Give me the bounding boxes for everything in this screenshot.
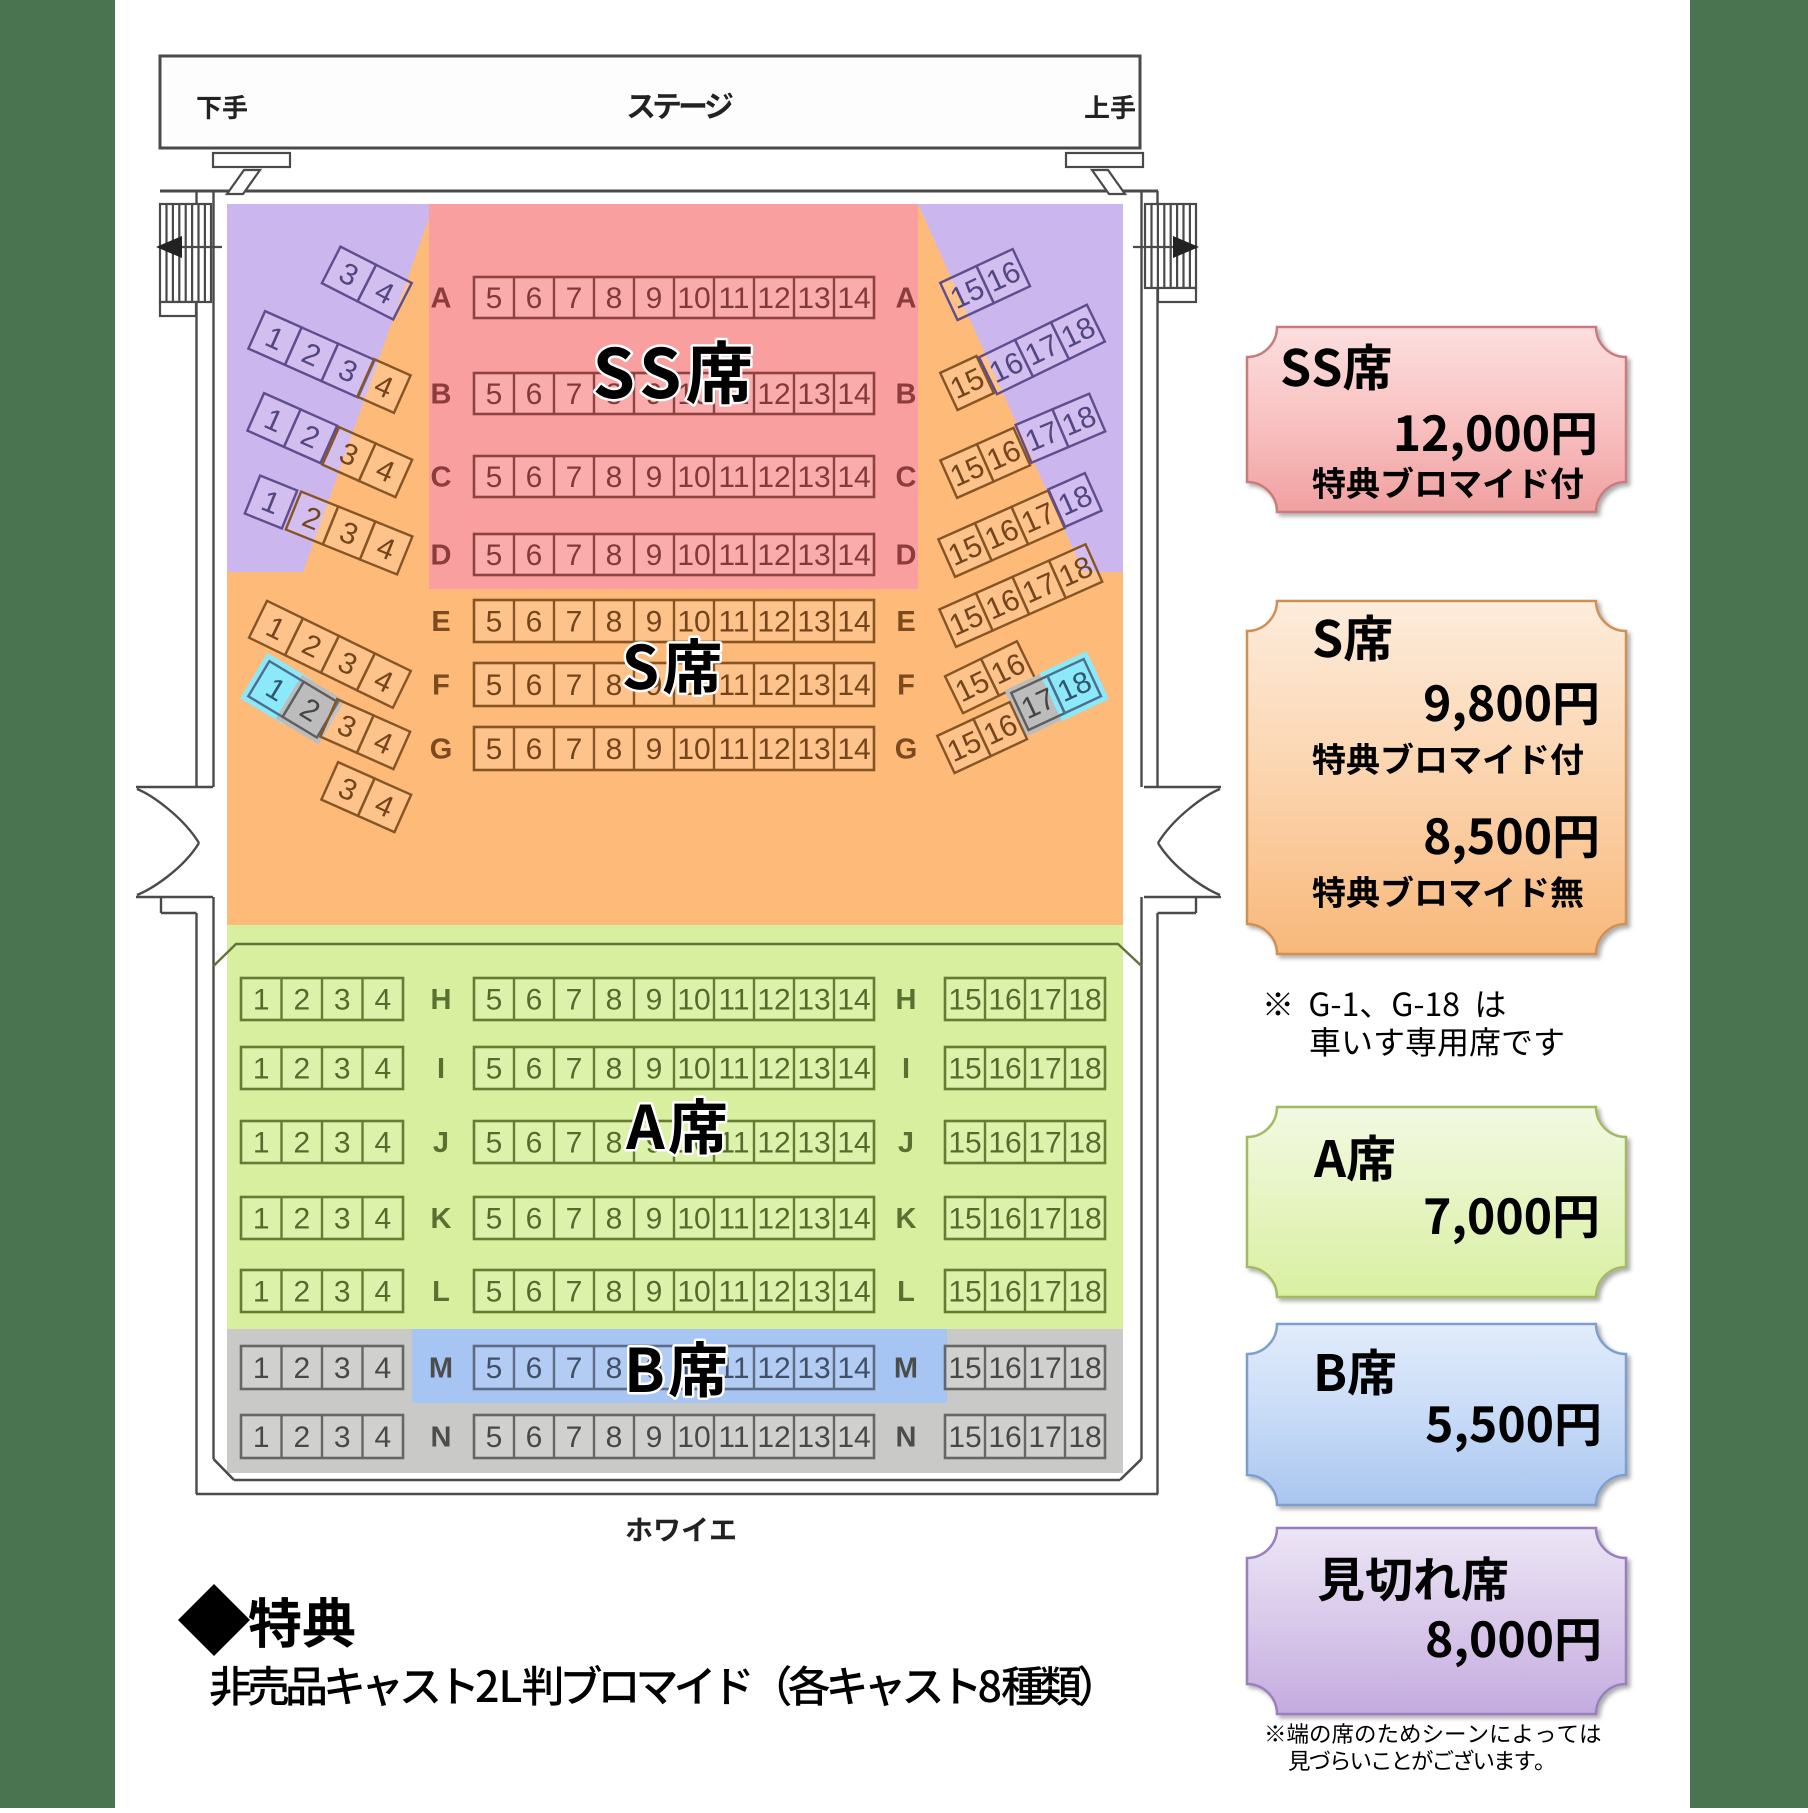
- svg-text:12: 12: [757, 1421, 790, 1454]
- svg-text:14: 14: [837, 606, 870, 639]
- svg-text:D: D: [431, 540, 452, 572]
- svg-text:9: 9: [646, 282, 663, 315]
- svg-text:12: 12: [757, 1276, 790, 1309]
- svg-text:15: 15: [948, 1053, 981, 1086]
- svg-text:A: A: [896, 283, 917, 315]
- svg-text:G: G: [895, 734, 918, 766]
- svg-text:9: 9: [646, 984, 663, 1017]
- svg-text:8: 8: [606, 1203, 623, 1236]
- svg-text:5: 5: [486, 984, 503, 1017]
- svg-text:13: 13: [797, 606, 830, 639]
- svg-text:10: 10: [677, 282, 710, 315]
- svg-text:10: 10: [677, 984, 710, 1017]
- svg-text:13: 13: [797, 378, 830, 411]
- svg-text:N: N: [896, 1422, 917, 1454]
- svg-text:4: 4: [374, 1352, 391, 1385]
- svg-text:12: 12: [757, 1127, 790, 1160]
- svg-text:13: 13: [797, 282, 830, 315]
- svg-text:9: 9: [646, 1421, 663, 1454]
- svg-text:14: 14: [837, 669, 870, 702]
- svg-text:6: 6: [526, 984, 543, 1017]
- svg-text:16: 16: [988, 1276, 1021, 1309]
- svg-text:4: 4: [374, 1127, 391, 1160]
- svg-text:12: 12: [757, 282, 790, 315]
- svg-text:7: 7: [566, 378, 583, 411]
- svg-text:14: 14: [837, 378, 870, 411]
- svg-text:15: 15: [948, 1276, 981, 1309]
- svg-text:L: L: [432, 1276, 450, 1308]
- svg-text:11: 11: [718, 669, 749, 702]
- svg-text:B: B: [896, 379, 917, 411]
- svg-text:17: 17: [1028, 1203, 1061, 1236]
- svg-text:15: 15: [948, 1127, 981, 1160]
- svg-text:16: 16: [988, 1127, 1021, 1160]
- svg-text:12: 12: [757, 606, 790, 639]
- svg-text:L: L: [897, 1276, 915, 1308]
- svg-text:18: 18: [1068, 1203, 1101, 1236]
- svg-text:8: 8: [606, 461, 623, 494]
- svg-text:11: 11: [718, 984, 749, 1017]
- svg-text:8: 8: [606, 1053, 623, 1086]
- svg-text:8: 8: [606, 1352, 623, 1385]
- svg-text:5: 5: [486, 1352, 503, 1385]
- svg-text:3: 3: [334, 1127, 351, 1160]
- svg-text:14: 14: [837, 1276, 870, 1309]
- svg-text:11: 11: [718, 1203, 749, 1236]
- svg-text:8: 8: [606, 606, 623, 639]
- svg-text:11: 11: [718, 1053, 749, 1086]
- svg-text:5: 5: [486, 606, 503, 639]
- svg-text:7: 7: [566, 1352, 583, 1385]
- svg-text:3: 3: [334, 1203, 351, 1236]
- svg-text:2: 2: [293, 1421, 310, 1454]
- svg-text:4: 4: [374, 984, 391, 1017]
- svg-text:18: 18: [1068, 1421, 1101, 1454]
- svg-text:11: 11: [718, 461, 749, 494]
- svg-text:1: 1: [253, 1203, 270, 1236]
- svg-text:14: 14: [837, 539, 870, 572]
- svg-text:12: 12: [757, 1352, 790, 1385]
- svg-text:M: M: [894, 1353, 918, 1385]
- svg-text:10: 10: [677, 539, 710, 572]
- svg-text:N: N: [431, 1422, 452, 1454]
- svg-text:18: 18: [1068, 1127, 1101, 1160]
- svg-text:B: B: [431, 379, 452, 411]
- svg-text:C: C: [431, 462, 452, 494]
- svg-text:6: 6: [526, 733, 543, 766]
- svg-text:5: 5: [486, 1203, 503, 1236]
- svg-text:14: 14: [837, 733, 870, 766]
- svg-text:3: 3: [334, 1276, 351, 1309]
- svg-text:E: E: [896, 606, 915, 638]
- svg-text:6: 6: [526, 1352, 543, 1385]
- svg-text:10: 10: [677, 1053, 710, 1086]
- svg-text:5: 5: [486, 669, 503, 702]
- svg-text:16: 16: [988, 1421, 1021, 1454]
- svg-text:18: 18: [1068, 1352, 1101, 1385]
- svg-text:6: 6: [526, 539, 543, 572]
- svg-text:12: 12: [757, 984, 790, 1017]
- svg-text:7: 7: [566, 461, 583, 494]
- svg-text:7: 7: [566, 1127, 583, 1160]
- svg-text:J: J: [898, 1127, 914, 1159]
- svg-text:9: 9: [646, 606, 663, 639]
- svg-text:7: 7: [566, 1421, 583, 1454]
- svg-text:14: 14: [837, 1127, 870, 1160]
- svg-text:K: K: [431, 1203, 452, 1235]
- svg-text:11: 11: [718, 733, 749, 766]
- svg-text:4: 4: [374, 1053, 391, 1086]
- svg-text:8: 8: [606, 984, 623, 1017]
- svg-text:15: 15: [948, 1421, 981, 1454]
- svg-text:7: 7: [566, 282, 583, 315]
- svg-text:6: 6: [526, 1053, 543, 1086]
- svg-text:13: 13: [797, 539, 830, 572]
- svg-text:6: 6: [526, 669, 543, 702]
- svg-text:14: 14: [837, 461, 870, 494]
- svg-text:9: 9: [646, 1276, 663, 1309]
- svg-text:18: 18: [1068, 984, 1101, 1017]
- svg-text:14: 14: [837, 282, 870, 315]
- svg-text:3: 3: [334, 1352, 351, 1385]
- svg-text:17: 17: [1028, 1053, 1061, 1086]
- svg-text:1: 1: [253, 1352, 270, 1385]
- svg-text:18: 18: [1068, 1276, 1101, 1309]
- svg-text:A: A: [431, 283, 452, 315]
- svg-text:9: 9: [646, 733, 663, 766]
- svg-text:4: 4: [374, 1203, 391, 1236]
- svg-text:5: 5: [486, 1127, 503, 1160]
- svg-text:1: 1: [253, 1053, 270, 1086]
- svg-text:2: 2: [293, 1276, 310, 1309]
- svg-text:8: 8: [606, 1276, 623, 1309]
- svg-text:16: 16: [988, 1352, 1021, 1385]
- svg-text:13: 13: [797, 669, 830, 702]
- svg-text:1: 1: [253, 1276, 270, 1309]
- svg-text:18: 18: [1068, 1053, 1101, 1086]
- svg-text:17: 17: [1028, 1276, 1061, 1309]
- svg-text:H: H: [431, 984, 452, 1016]
- svg-text:4: 4: [374, 1276, 391, 1309]
- svg-text:3: 3: [334, 1421, 351, 1454]
- svg-text:2: 2: [293, 1053, 310, 1086]
- svg-text:10: 10: [677, 1203, 710, 1236]
- svg-text:13: 13: [797, 1053, 830, 1086]
- svg-text:14: 14: [837, 1352, 870, 1385]
- svg-text:12: 12: [757, 1053, 790, 1086]
- svg-text:4: 4: [374, 1421, 391, 1454]
- svg-text:6: 6: [526, 282, 543, 315]
- svg-text:12: 12: [757, 461, 790, 494]
- svg-text:11: 11: [718, 539, 749, 572]
- svg-text:5: 5: [486, 1053, 503, 1086]
- svg-text:13: 13: [797, 1276, 830, 1309]
- svg-text:17: 17: [1028, 1352, 1061, 1385]
- svg-text:E: E: [431, 606, 450, 638]
- svg-text:5: 5: [486, 733, 503, 766]
- svg-text:F: F: [432, 670, 450, 702]
- svg-text:10: 10: [677, 606, 710, 639]
- svg-text:7: 7: [566, 1203, 583, 1236]
- svg-text:2: 2: [293, 1127, 310, 1160]
- svg-text:5: 5: [486, 282, 503, 315]
- svg-text:16: 16: [988, 984, 1021, 1017]
- svg-text:17: 17: [1028, 1127, 1061, 1160]
- svg-text:15: 15: [948, 1203, 981, 1236]
- svg-text:5: 5: [486, 1421, 503, 1454]
- svg-text:11: 11: [718, 1276, 749, 1309]
- svg-text:17: 17: [1028, 1421, 1061, 1454]
- svg-text:15: 15: [948, 984, 981, 1017]
- svg-text:9: 9: [646, 1203, 663, 1236]
- svg-text:11: 11: [718, 606, 749, 639]
- svg-text:9: 9: [646, 461, 663, 494]
- svg-text:7: 7: [566, 1053, 583, 1086]
- svg-text:H: H: [896, 984, 917, 1016]
- svg-text:16: 16: [988, 1203, 1021, 1236]
- svg-text:5: 5: [486, 461, 503, 494]
- svg-text:D: D: [896, 540, 917, 572]
- svg-text:8: 8: [606, 282, 623, 315]
- svg-text:13: 13: [797, 1421, 830, 1454]
- svg-text:11: 11: [718, 1421, 749, 1454]
- svg-text:3: 3: [334, 1053, 351, 1086]
- svg-text:8: 8: [606, 539, 623, 572]
- svg-text:9: 9: [646, 1053, 663, 1086]
- svg-text:13: 13: [797, 733, 830, 766]
- svg-text:14: 14: [837, 1203, 870, 1236]
- svg-text:8: 8: [606, 669, 623, 702]
- svg-text:7: 7: [566, 606, 583, 639]
- svg-text:17: 17: [1028, 984, 1061, 1017]
- svg-text:13: 13: [797, 1203, 830, 1236]
- svg-text:16: 16: [988, 1053, 1021, 1086]
- svg-text:I: I: [437, 1053, 445, 1085]
- svg-text:12: 12: [757, 539, 790, 572]
- svg-text:10: 10: [677, 1276, 710, 1309]
- svg-text:5: 5: [486, 378, 503, 411]
- svg-text:1: 1: [253, 1127, 270, 1160]
- svg-text:6: 6: [526, 461, 543, 494]
- svg-text:6: 6: [526, 606, 543, 639]
- svg-text:9: 9: [646, 539, 663, 572]
- svg-text:13: 13: [797, 461, 830, 494]
- svg-text:12: 12: [757, 733, 790, 766]
- svg-text:M: M: [429, 1353, 453, 1385]
- svg-text:11: 11: [718, 282, 749, 315]
- svg-text:F: F: [897, 670, 915, 702]
- svg-text:8: 8: [606, 733, 623, 766]
- svg-text:10: 10: [677, 461, 710, 494]
- svg-text:7: 7: [566, 539, 583, 572]
- svg-text:2: 2: [293, 984, 310, 1017]
- svg-text:12: 12: [757, 378, 790, 411]
- svg-text:13: 13: [797, 984, 830, 1017]
- svg-text:8: 8: [606, 1127, 623, 1160]
- svg-text:7: 7: [566, 733, 583, 766]
- svg-text:C: C: [896, 462, 917, 494]
- svg-text:10: 10: [677, 1421, 710, 1454]
- svg-text:2: 2: [293, 1352, 310, 1385]
- svg-text:7: 7: [566, 669, 583, 702]
- svg-text:7: 7: [566, 984, 583, 1017]
- svg-text:14: 14: [837, 1053, 870, 1086]
- svg-text:6: 6: [526, 378, 543, 411]
- svg-text:15: 15: [948, 1352, 981, 1385]
- svg-text:1: 1: [253, 984, 270, 1017]
- svg-text:12: 12: [757, 1203, 790, 1236]
- svg-text:6: 6: [526, 1127, 543, 1160]
- svg-text:10: 10: [677, 733, 710, 766]
- svg-text:12: 12: [757, 669, 790, 702]
- svg-text:2: 2: [293, 1203, 310, 1236]
- svg-text:13: 13: [797, 1352, 830, 1385]
- svg-text:J: J: [433, 1127, 449, 1159]
- svg-text:1: 1: [253, 1421, 270, 1454]
- svg-text:6: 6: [526, 1276, 543, 1309]
- svg-text:7: 7: [566, 1276, 583, 1309]
- svg-text:5: 5: [486, 539, 503, 572]
- svg-text:G: G: [430, 734, 453, 766]
- svg-text:8: 8: [606, 1421, 623, 1454]
- svg-text:I: I: [902, 1053, 910, 1085]
- svg-text:13: 13: [797, 1127, 830, 1160]
- svg-text:14: 14: [837, 984, 870, 1017]
- svg-text:6: 6: [526, 1203, 543, 1236]
- svg-text:14: 14: [837, 1421, 870, 1454]
- svg-text:K: K: [896, 1203, 917, 1235]
- svg-text:3: 3: [334, 984, 351, 1017]
- svg-text:5: 5: [486, 1276, 503, 1309]
- svg-text:6: 6: [526, 1421, 543, 1454]
